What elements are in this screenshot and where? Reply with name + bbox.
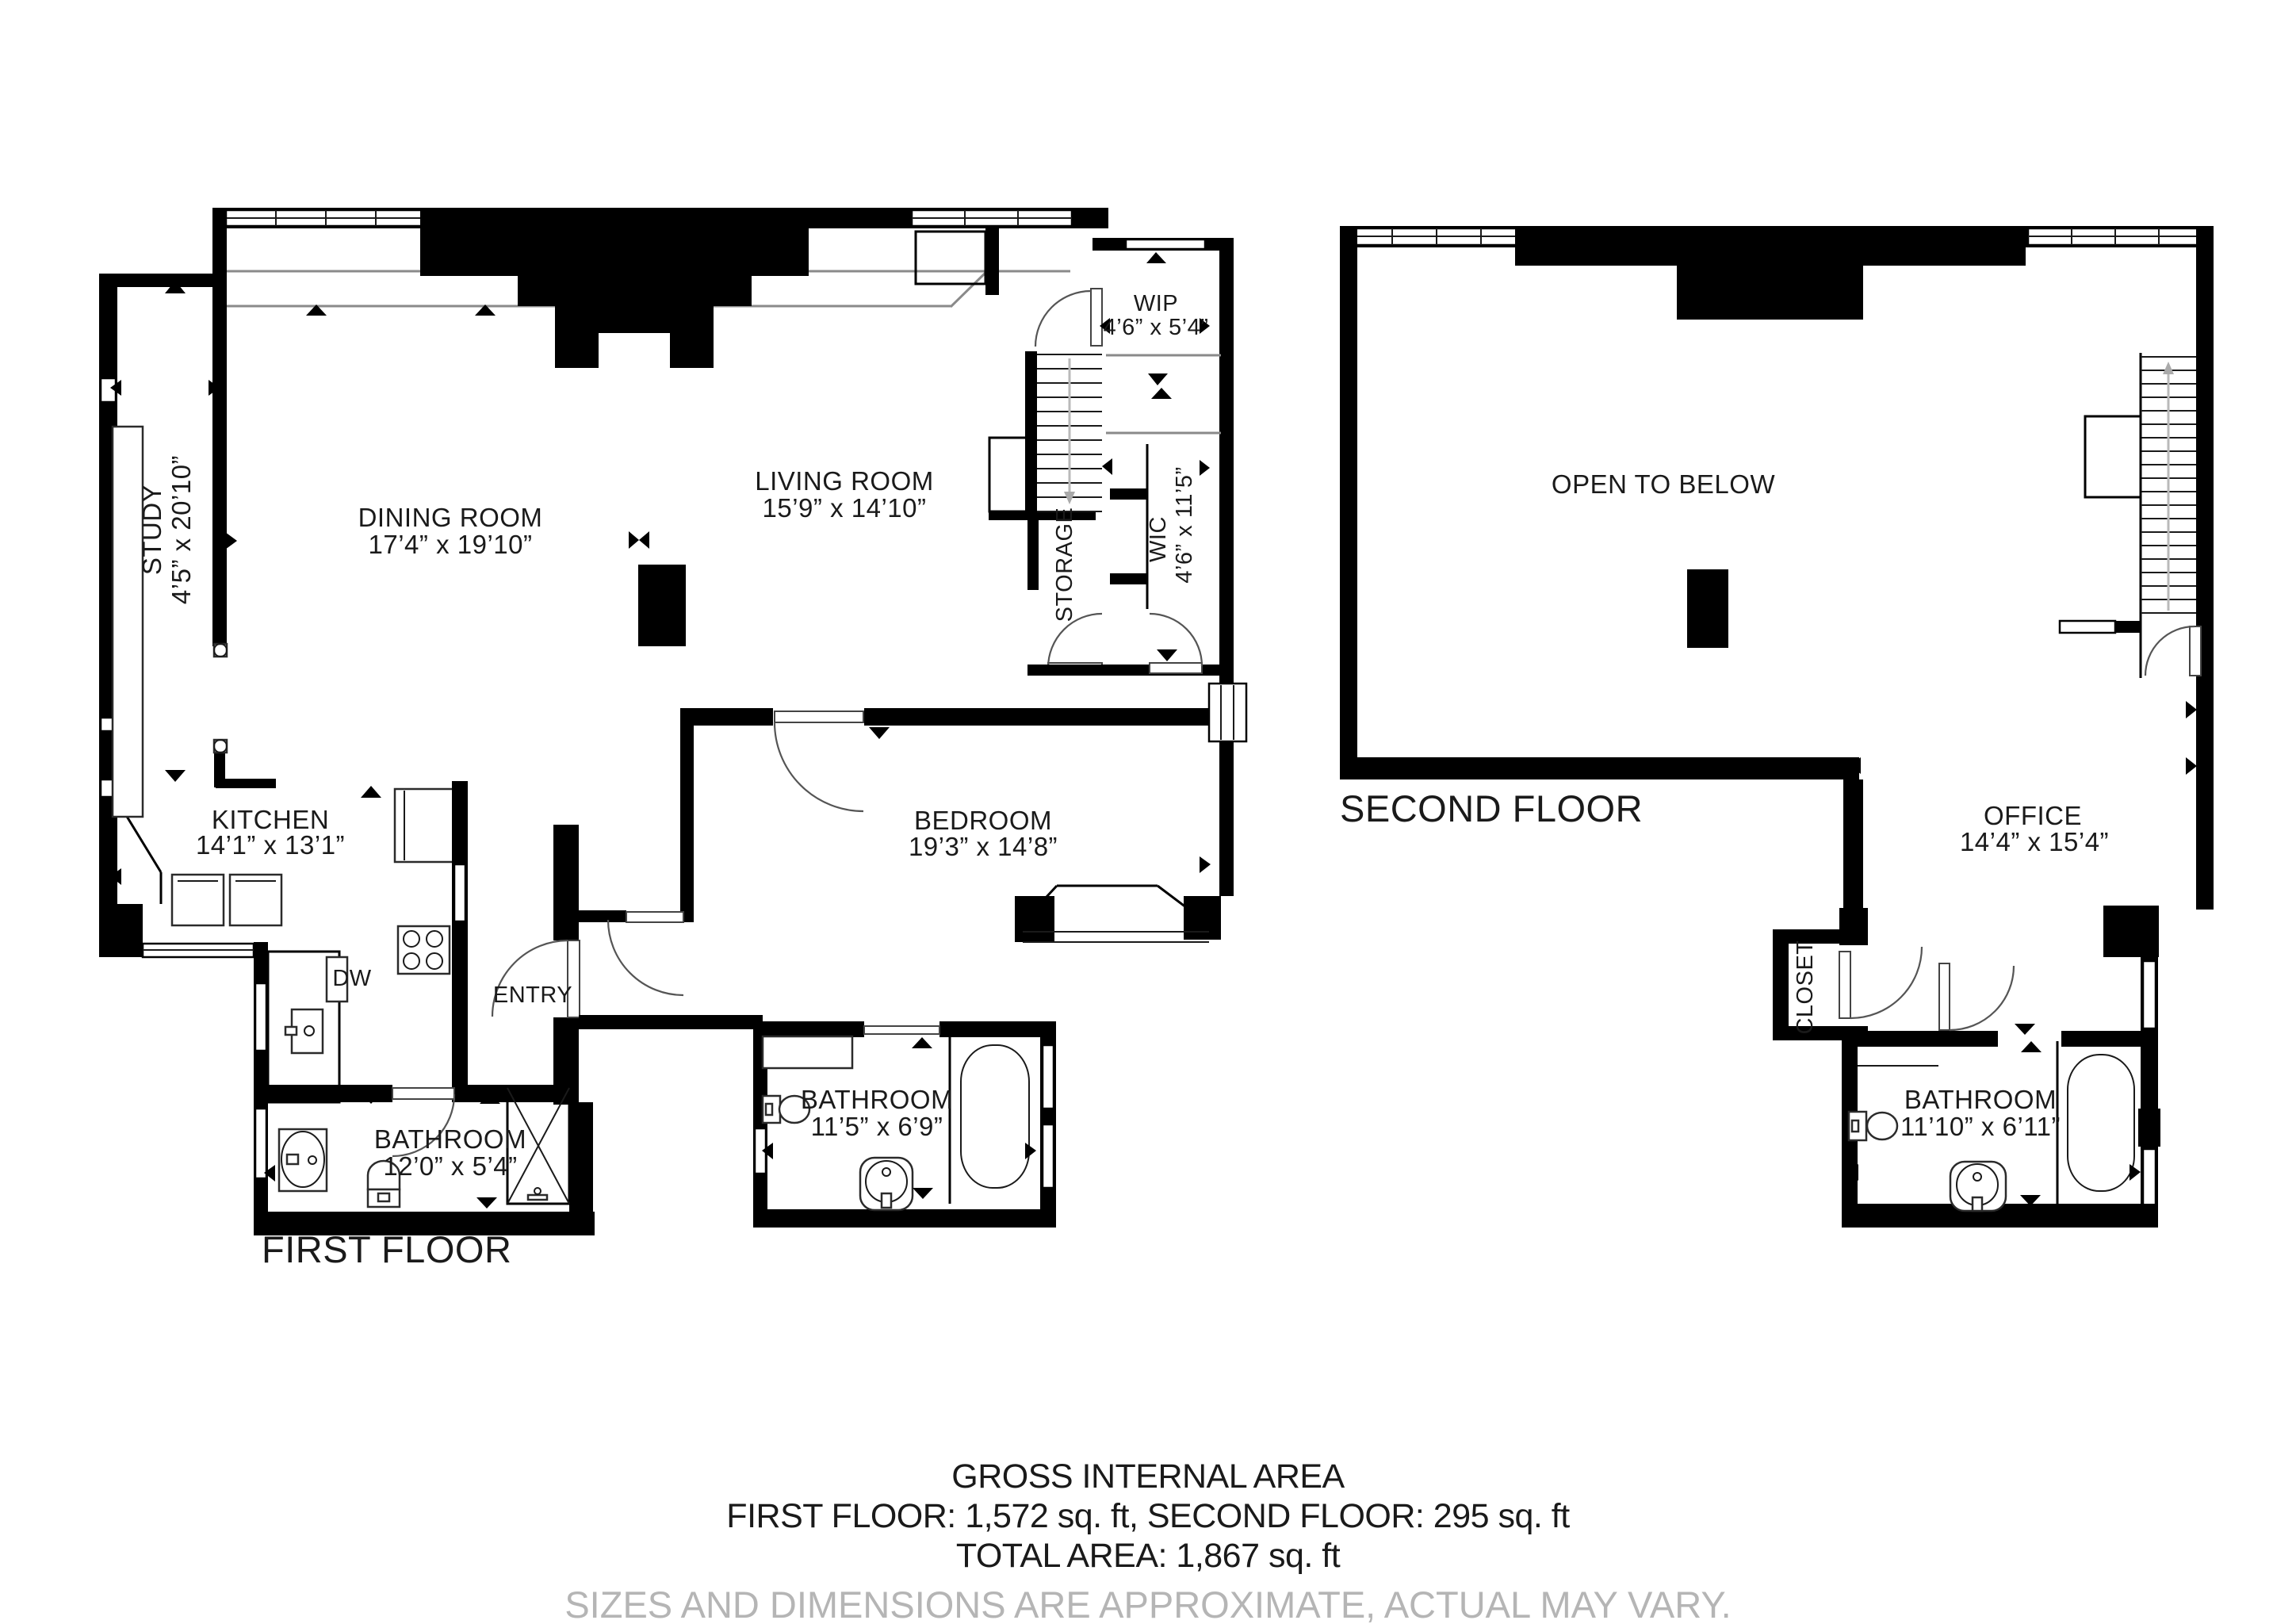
bathroom3-label: BATHROOM (1904, 1085, 2057, 1114)
bowtie-marker (629, 531, 649, 549)
kitchen-sink (285, 1009, 323, 1053)
total-area-line: TOTAL AREA: 1,867 sq. ft (956, 1537, 1341, 1575)
wall (1027, 519, 1039, 590)
door-arc (1950, 966, 2014, 1030)
wall (452, 781, 468, 1102)
second-floor-title: SECOND FLOOR (1340, 787, 1643, 829)
window (101, 378, 116, 402)
window-band (912, 210, 1072, 226)
bathtub (950, 1032, 1029, 1204)
office-label: OFFICE (1984, 801, 2082, 830)
door-arc (1150, 614, 1202, 666)
window-band (1348, 228, 1526, 245)
door-arc (1850, 947, 1922, 1018)
floorplan-drawing: STUDY 4’5” x 20’10” DINING ROOM 17’4” x … (0, 0, 2296, 1624)
open-to-below-label: OPEN TO BELOW (1552, 469, 1776, 499)
window-bay-east (1209, 684, 1246, 741)
wall (216, 779, 276, 788)
hall-closet (916, 232, 985, 284)
bathroom2-dims: 11’5” x 6’9” (811, 1112, 943, 1141)
closet-door (626, 912, 683, 922)
study-label: STUDY (137, 485, 166, 575)
bay-window (1015, 886, 1221, 942)
vanity (763, 1036, 852, 1068)
bathtub (2057, 1041, 2134, 1208)
bathroom-door (392, 1088, 454, 1099)
sink (1950, 1162, 2006, 1211)
kitchen-seat (230, 875, 281, 925)
wall (579, 910, 626, 922)
wall (569, 1102, 593, 1213)
wip-dims: 4’6” x 5’4” (1104, 315, 1209, 340)
wall (1340, 226, 1357, 777)
wall (1340, 757, 1859, 779)
disclaimer-line: SIZES AND DIMENSIONS ARE APPROXIMATE, AC… (564, 1584, 1731, 1624)
bathroom1-label: BATHROOM (374, 1124, 526, 1154)
closet-door (1839, 952, 1850, 1018)
dw-label: DW (332, 966, 371, 991)
wall (753, 1209, 1056, 1228)
wall (212, 208, 227, 646)
footer: GROSS INTERNAL AREA FIRST FLOOR: 1,572 s… (564, 1457, 1731, 1624)
window (2143, 961, 2156, 1028)
column (1687, 569, 1728, 648)
wall (1110, 488, 1147, 500)
window (2060, 621, 2115, 633)
door-arc (608, 920, 683, 995)
wall (989, 512, 1096, 520)
wall (1773, 929, 1789, 1040)
bathroom-door (1939, 963, 1950, 1030)
stair-door (1091, 289, 1102, 346)
door-arc (2145, 626, 2195, 676)
wall (683, 910, 694, 922)
dining-dims: 17’4” x 19’10” (369, 530, 533, 559)
storage-label: STORAGE (1052, 507, 1077, 622)
wip-label: WIP (1134, 291, 1178, 316)
sink (860, 1158, 913, 1210)
door-arc (1035, 291, 1091, 347)
window (1043, 1045, 1054, 1109)
kitchen-seat (172, 875, 224, 925)
wic-dims: 4’6” x 11’5” (1172, 466, 1197, 583)
beam-line-diagonal (951, 271, 987, 307)
wall (1843, 779, 1863, 908)
window-band (2028, 228, 2204, 245)
staircase (2060, 353, 2201, 678)
wall (1219, 238, 1234, 896)
second-floor-plan: OPEN TO BELOW OFFICE 14’4” x 15’4” CLOSE… (1340, 226, 2214, 1228)
wall (99, 904, 143, 957)
dining-label: DINING ROOM (358, 503, 543, 532)
column (638, 565, 686, 646)
stove (398, 926, 450, 974)
study-dims: 4’5” x 20’10” (166, 455, 196, 604)
wall (579, 1015, 763, 1029)
door-arc (775, 722, 863, 811)
window-band (226, 210, 428, 226)
window (454, 864, 465, 921)
stair-arrow-up (2163, 362, 2174, 374)
wall (939, 1021, 1056, 1037)
window (1126, 239, 1205, 249)
bedroom-dims: 19’3” x 14’8” (909, 832, 1058, 861)
stair-door (2190, 626, 2201, 676)
floorplan-page: STUDY 4’5” x 20’10” DINING ROOM 17’4” x … (0, 0, 2296, 1624)
floor-areas-line: FIRST FLOOR: 1,572 sq. ft, SECOND FLOOR:… (726, 1497, 1570, 1535)
first-floor-plan: STUDY 4’5” x 20’10” DINING ROOM 17’4” x … (99, 208, 1246, 1270)
wall (1842, 1031, 1998, 1047)
window (2143, 1149, 2156, 1206)
chimney-mass (1515, 226, 2026, 320)
wall (2103, 906, 2159, 957)
wic-door (1150, 663, 1202, 673)
wall (2061, 1031, 2141, 1047)
toilet (1849, 1112, 1897, 1140)
stair-landing-shelf (989, 438, 1031, 511)
gross-area-heading: GROSS INTERNAL AREA (951, 1457, 1345, 1496)
stair-landing-shelf (2085, 416, 2141, 497)
sink (279, 1129, 327, 1191)
wall (2138, 1109, 2160, 1147)
wall (753, 1021, 864, 1037)
living-dims: 15’9” x 14’10” (763, 493, 927, 523)
wall (2196, 226, 2214, 910)
bathroom3-dims: 11’10” x 6’11” (1900, 1112, 2061, 1141)
chimney-mass (420, 208, 809, 368)
office-dims: 14’4” x 15’4” (1960, 827, 2109, 856)
kitchen-dims: 14’1” x 13’1” (196, 830, 345, 860)
entry-label: ENTRY (493, 982, 572, 1008)
bathroom2-label: BATHROOM (801, 1085, 953, 1114)
wall (985, 228, 999, 295)
living-label: LIVING ROOM (755, 466, 934, 496)
first-floor-title: FIRST FLOOR (262, 1228, 511, 1270)
wall (680, 708, 773, 726)
bedroom-door (775, 711, 863, 722)
window (1043, 1124, 1054, 1188)
bedroom-label: BEDROOM (914, 806, 1052, 835)
wall (1110, 573, 1147, 584)
bathroom-door (864, 1026, 939, 1034)
wall (680, 726, 694, 920)
wall (1839, 908, 1868, 945)
wall (2115, 621, 2141, 633)
wic-label: WIC (1146, 516, 1171, 562)
wall (553, 825, 579, 940)
wall (864, 708, 1231, 726)
closet-label: CLOSET (1793, 940, 1818, 1034)
bathroom1-dims: 12’0” x 5’4” (383, 1151, 517, 1181)
entry-area (492, 825, 580, 1105)
